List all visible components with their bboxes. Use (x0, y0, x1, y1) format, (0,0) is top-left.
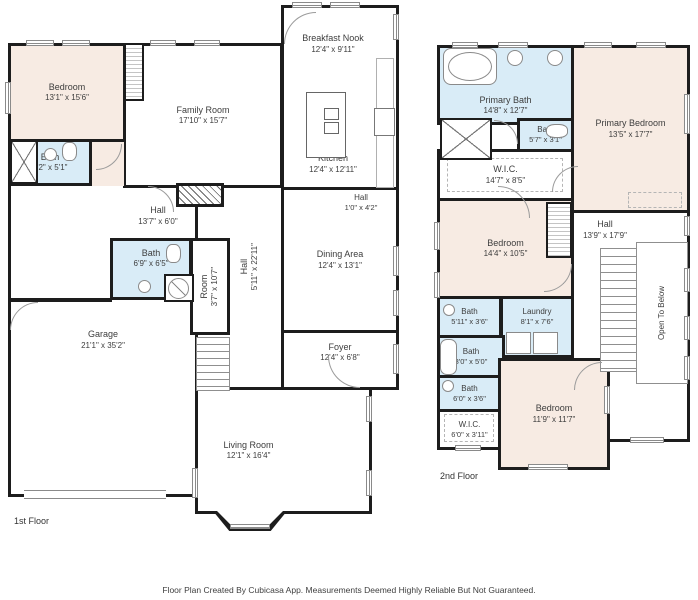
floor2-label: 2nd Floor (440, 471, 478, 481)
room-dims: 8'0" x 5'0" (455, 357, 488, 366)
room-name: Dining Area (317, 249, 364, 260)
sink (547, 50, 563, 66)
room-label: Primary Bedroom 13'5" x 17'7" (595, 118, 665, 139)
toilet (62, 142, 77, 161)
room-dims: 11'9" x 11'7" (533, 415, 576, 425)
window (230, 524, 270, 529)
room-name: Room (199, 267, 210, 306)
room-dims: 6'0" x 3'6" (453, 394, 486, 403)
room-label: Bath 6'9" x 6'5" (134, 248, 169, 269)
range-appliance (374, 108, 395, 136)
washer (506, 332, 531, 354)
window (630, 437, 664, 443)
window (192, 468, 198, 498)
room-dims: 6'9" x 6'5" (134, 259, 169, 269)
window (393, 290, 399, 316)
room-name: Bedroom (45, 82, 89, 93)
sink (138, 280, 151, 293)
window (528, 464, 568, 470)
room-garage: Garage 21'1" x 35'2" (8, 183, 198, 497)
room-label: Laundry 8'1" x 7'6" (521, 307, 554, 326)
room-label: Hall 5'11" x 22'11" (239, 243, 260, 290)
room-label: Living Room 12'1" x 16'4" (223, 440, 273, 461)
footer-note: Floor Plan Created By Cubicasa App. Meas… (0, 585, 698, 595)
room-dims: 5'11" x 22'11" (251, 243, 261, 290)
bathtub (440, 339, 457, 375)
room-dims: 3'7" x 10'7" (211, 267, 221, 306)
room-name: Hall (239, 243, 250, 290)
closet-rail (444, 414, 494, 442)
room-dims: 13'1" x 15'6" (45, 93, 89, 103)
window (604, 386, 610, 414)
window (194, 40, 220, 46)
window (330, 2, 360, 8)
room-family: Family Room 17'10" x 15'7" (123, 43, 283, 188)
open-to-below-label: Open To Below (657, 286, 667, 340)
window (62, 40, 90, 46)
window (393, 14, 399, 40)
room-label: Room 3'7" x 10'7" (199, 267, 220, 306)
window (5, 82, 11, 114)
closet-rail (628, 192, 682, 208)
water-heater (168, 278, 189, 299)
window (455, 445, 481, 451)
room-name: Bath (134, 248, 169, 259)
staircase-down (196, 337, 230, 391)
room-dims: 12'4" x 13'1" (317, 261, 364, 271)
window (684, 216, 690, 236)
sink (442, 380, 454, 392)
toilet (546, 124, 568, 138)
closet-strip (546, 202, 572, 258)
room-dims: 8'1" x 7'6" (521, 317, 554, 326)
room-name: Bedroom (533, 403, 576, 414)
room-name: Bath (451, 307, 487, 317)
room-dims: 17'10" x 15'7" (176, 116, 229, 126)
staircase (600, 248, 638, 372)
room-name: Family Room (176, 105, 229, 116)
room-living: Living Room 12'1" x 16'4" (195, 387, 372, 514)
window (366, 470, 372, 496)
room-primary-bedroom: Primary Bedroom 13'5" x 17'7" (571, 45, 690, 213)
window (684, 94, 690, 134)
window (366, 396, 372, 422)
room-name: Foyer (320, 342, 359, 353)
room-dims: 5'11" x 3'6" (451, 317, 487, 326)
stove-burner (324, 108, 339, 120)
room-bedroom-1: Bedroom 13'1" x 15'6" (8, 43, 126, 142)
room-label: Bath 5'11" x 3'6" (451, 307, 487, 326)
window (684, 316, 690, 340)
room-dining: Dining Area 12'4" x 13'1" (281, 187, 399, 333)
room-name: Living Room (223, 440, 273, 451)
room-dims: 14'8" x 12'7" (479, 106, 531, 116)
room-label: Garage 21'1" x 35'2" (81, 329, 125, 350)
window (452, 42, 478, 48)
dryer (533, 332, 558, 354)
room-label: Primary Bath 14'8" x 12'7" (479, 95, 531, 116)
room-label: Bath 6'0" x 3'6" (453, 384, 486, 403)
floor-plan-canvas: Garage 21'1" x 35'2" Family Room 17'10" … (0, 0, 698, 600)
window (684, 268, 690, 292)
bathtub-basin (448, 52, 492, 81)
room-hall-vertical: Hall 5'11" x 22'11" (226, 197, 274, 337)
window (434, 222, 440, 250)
window (26, 40, 54, 46)
garage-door (24, 490, 166, 499)
window (584, 42, 612, 48)
room-dims: 14'4" x 10'5" (484, 249, 528, 259)
room-name: Bath (453, 384, 486, 394)
garage-top-wall (8, 298, 112, 302)
room-name: Garage (81, 329, 125, 340)
room-label: Bedroom 14'4" x 10'5" (484, 238, 528, 259)
window (636, 42, 666, 48)
shower (10, 140, 38, 184)
closet-strip (124, 43, 144, 101)
floor1-label: 1st Floor (14, 516, 49, 526)
stair-hatch (176, 183, 224, 207)
window (393, 344, 399, 374)
room-name: Primary Bedroom (595, 118, 665, 129)
stove-burner (324, 122, 339, 134)
room-small-room: Room 3'7" x 10'7" (190, 238, 230, 335)
window (393, 246, 399, 276)
room-label: Bedroom 11'9" x 11'7" (533, 403, 576, 424)
room-label: Dining Area 12'4" x 13'1" (317, 249, 364, 270)
room-name: Bath (455, 347, 488, 357)
shower (440, 118, 492, 160)
room-bath-3: Bath 5'11" x 3'6" (437, 296, 502, 338)
sink (44, 148, 57, 161)
room-label: Family Room 17'10" x 15'7" (176, 105, 229, 126)
window (684, 356, 690, 380)
room-dims: 21'1" x 35'2" (81, 341, 125, 351)
window (434, 272, 440, 298)
room-label: Bath 8'0" x 5'0" (455, 347, 488, 366)
room-label: Bedroom 13'1" x 15'6" (45, 82, 89, 103)
room-name: Laundry (521, 307, 554, 317)
sink (507, 50, 523, 66)
window (498, 42, 528, 48)
room-dims: 12'1" x 16'4" (223, 451, 273, 461)
open-to-below-area: Open To Below (636, 242, 688, 384)
sink (443, 304, 455, 316)
room-name: Primary Bath (479, 95, 531, 106)
toilet (166, 244, 181, 263)
room-dims: 13'5" x 17'7" (595, 130, 665, 140)
window (292, 2, 322, 8)
window (150, 40, 176, 46)
room-name: Bedroom (484, 238, 528, 249)
